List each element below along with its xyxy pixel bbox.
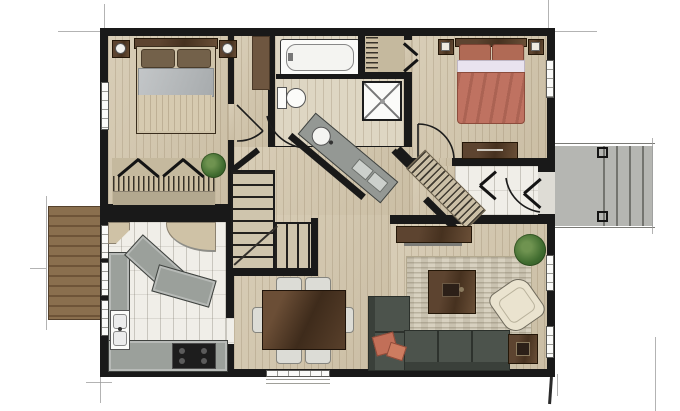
closet-bottom-wall — [358, 72, 404, 79]
bed-1-grey-blanket — [138, 68, 214, 97]
dining-chair — [305, 348, 331, 364]
sketch-line — [86, 382, 112, 383]
sketch-line — [548, 0, 549, 29]
deck-right-steps — [603, 146, 653, 226]
corner-shower — [362, 81, 402, 121]
table-decor — [459, 287, 464, 292]
stove-burner — [179, 358, 185, 364]
dresser-handle — [477, 149, 503, 151]
bathtub-basin — [286, 44, 354, 71]
bed-2-duvet — [457, 72, 525, 124]
living-room-plant — [514, 234, 546, 266]
hall-tall-cabinet — [252, 36, 270, 90]
table-lamp-icon — [115, 43, 126, 54]
sink-basin — [113, 331, 127, 346]
vanity-faucet — [328, 140, 334, 146]
living-window-1 — [546, 255, 554, 291]
sketch-line — [104, 4, 105, 29]
bedroom-1-window — [101, 82, 109, 130]
table-lamp-icon — [222, 43, 233, 54]
sofa-main — [404, 330, 510, 371]
deck-post — [597, 211, 608, 222]
stair-lower-flight — [273, 222, 315, 270]
side-table-inset — [516, 342, 530, 356]
coffee-table — [428, 270, 476, 314]
window-sill-lines — [266, 379, 330, 384]
sketch-line — [30, 268, 46, 269]
closet-1-shelf — [113, 191, 215, 205]
vanity-sink — [308, 123, 335, 150]
sketch-line — [555, 31, 597, 32]
floor-plan-canvas — [0, 0, 680, 411]
media-console — [396, 226, 472, 243]
stair-bottom-wall — [229, 268, 318, 276]
bathtub-faucet — [288, 53, 293, 61]
sketch-line — [100, 377, 101, 403]
sketch-line — [557, 374, 558, 396]
toilet-bowl — [286, 88, 306, 108]
bedroom-1-plant — [201, 153, 226, 178]
bathroom-door-arc — [262, 112, 308, 152]
bath-closet-wall — [358, 36, 365, 76]
dining-chair — [276, 348, 302, 364]
table-decor — [442, 283, 460, 297]
range-stove — [172, 343, 216, 369]
deck-edge-line — [555, 143, 655, 144]
bed-1-pillow-left — [141, 49, 175, 68]
nightstand-decor — [441, 42, 450, 51]
dining-window — [266, 370, 330, 377]
sketch-line — [652, 138, 653, 234]
sketch-line — [58, 31, 104, 32]
closet-1-hanging-clothes — [113, 176, 215, 191]
bed-1-duvet — [138, 95, 212, 131]
stove-burner — [201, 348, 207, 354]
stove-burner — [201, 358, 207, 364]
dresser — [462, 142, 518, 159]
bedroom-2-window — [546, 60, 554, 98]
armchair-seam — [497, 285, 538, 325]
stair-side-wall — [311, 218, 318, 276]
tv-line — [404, 243, 462, 246]
sketch-stroke — [548, 377, 553, 404]
deck-left — [48, 206, 104, 320]
laundry-hanging-clothes — [366, 37, 378, 72]
deck-edge-line — [555, 227, 655, 228]
bed-1-pillow-right — [177, 49, 211, 68]
stair-upper-flight — [231, 170, 275, 270]
bedroom-1-door-opening — [228, 104, 234, 140]
living-window-2 — [546, 326, 554, 358]
shower-drain — [380, 99, 385, 104]
kitchen-sink — [110, 310, 130, 350]
deck-post — [597, 147, 608, 158]
sofa-back-edge — [369, 297, 375, 370]
sketch-line — [46, 196, 47, 330]
sofa-back-edge — [405, 362, 509, 370]
dining-table — [262, 290, 346, 350]
stove-burner — [179, 348, 185, 354]
tub-wall — [276, 74, 360, 79]
side-table — [508, 334, 538, 364]
deck-right-landing — [555, 146, 603, 226]
sink-faucet — [118, 327, 122, 331]
sketch-line — [655, 337, 656, 411]
nightstand-decor — [531, 42, 540, 51]
